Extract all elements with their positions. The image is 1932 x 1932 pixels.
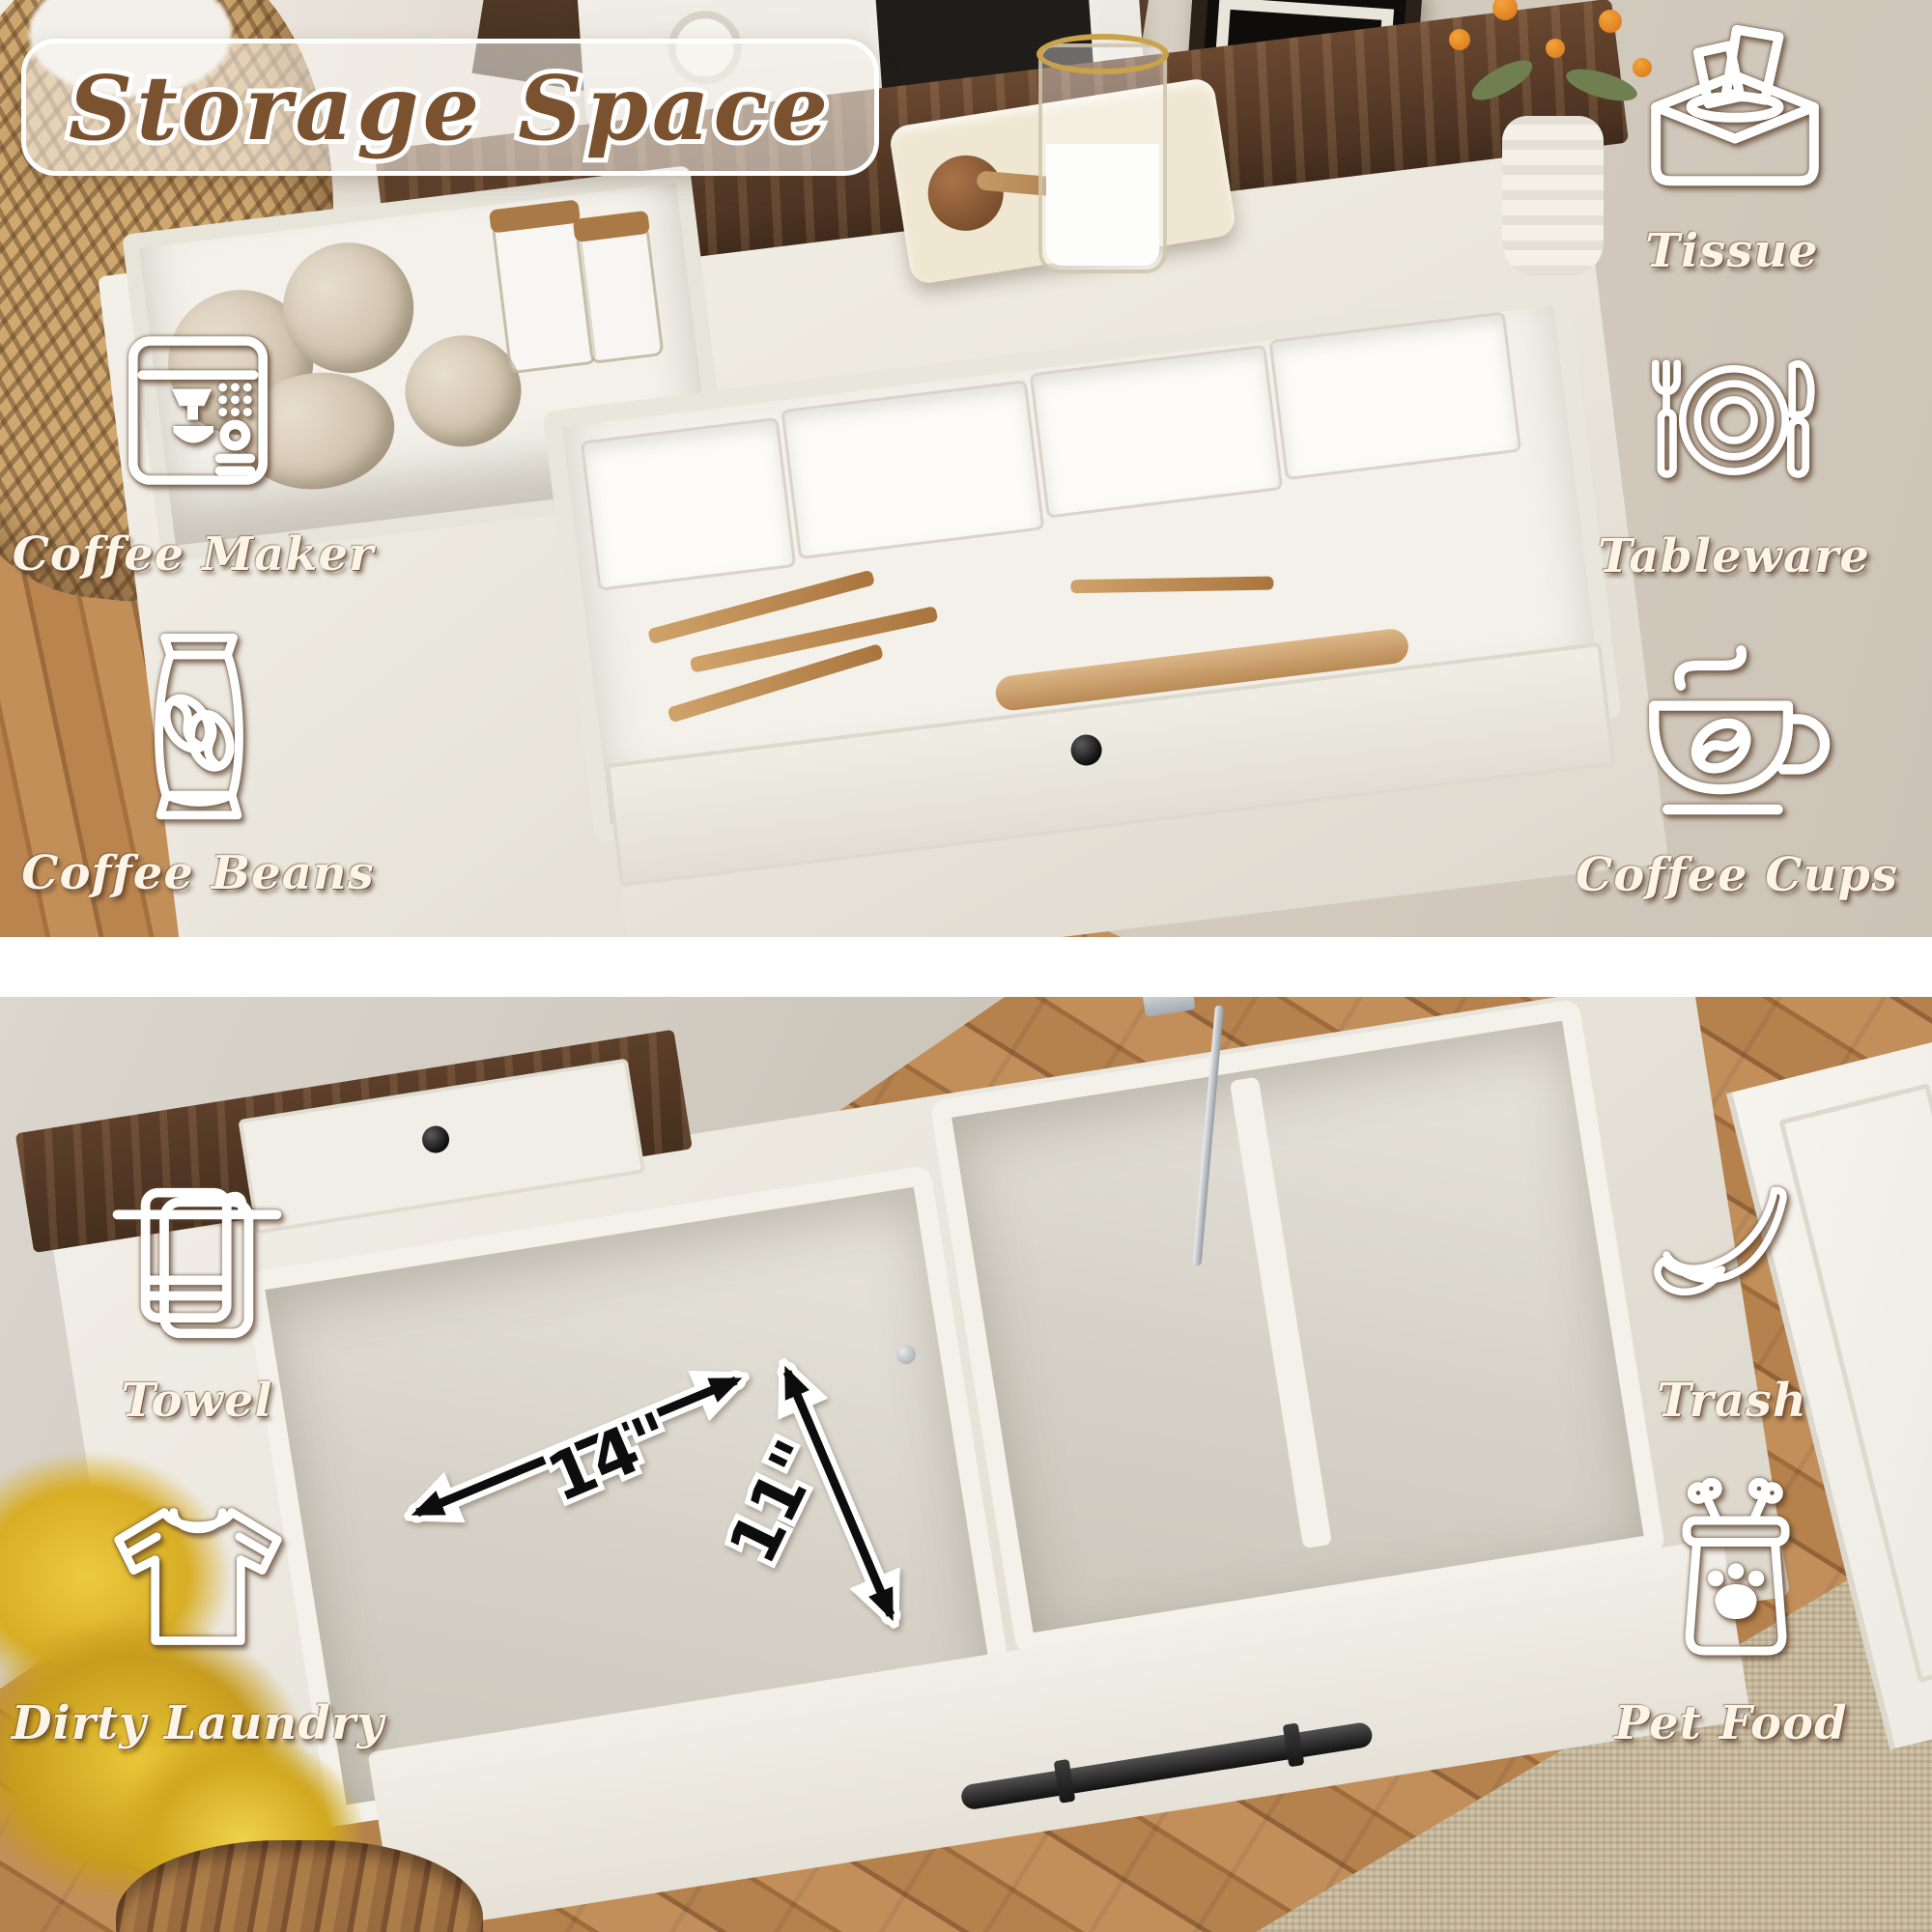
title-banner: Storage Space bbox=[21, 39, 879, 176]
coffee-beans-icon bbox=[128, 628, 270, 831]
page-title: Storage Space bbox=[69, 56, 832, 160]
tshirt-icon bbox=[106, 1499, 290, 1654]
towel-icon bbox=[111, 1174, 283, 1352]
label-tissue: Tissue bbox=[1645, 226, 1818, 277]
label-dirty-laundry: Dirty Laundry bbox=[12, 1698, 384, 1749]
tilt-out-bin-right bbox=[929, 999, 1665, 1655]
coffee-cup-icon bbox=[1631, 638, 1832, 831]
product-infographic: Storage Space Coffee Maker bbox=[0, 0, 1932, 1932]
coffee-maker-icon bbox=[121, 328, 275, 493]
title-text-svg: Storage Space bbox=[44, 47, 856, 167]
label-trash: Trash bbox=[1657, 1376, 1807, 1427]
bottom-photo-panel bbox=[0, 997, 1932, 1932]
tissue-box-icon bbox=[1638, 21, 1832, 200]
label-pet-food: Pet Food bbox=[1614, 1698, 1847, 1749]
glass-milk-jug bbox=[1038, 43, 1167, 273]
vase bbox=[1502, 116, 1604, 275]
label-coffee-maker: Coffee Maker bbox=[13, 529, 375, 581]
banana-peel-icon bbox=[1652, 1180, 1812, 1335]
label-towel: Towel bbox=[121, 1376, 272, 1427]
lid-stay-bracket bbox=[1142, 997, 1195, 1017]
pet-food-icon bbox=[1663, 1478, 1808, 1676]
tableware-icon bbox=[1637, 353, 1831, 488]
label-coffee-beans: Coffee Beans bbox=[21, 848, 374, 899]
salt-shaker bbox=[923, 150, 1009, 236]
panel-divider bbox=[0, 937, 1932, 997]
label-tableware: Tableware bbox=[1598, 531, 1870, 582]
label-coffee-cups: Coffee Cups bbox=[1576, 850, 1898, 901]
